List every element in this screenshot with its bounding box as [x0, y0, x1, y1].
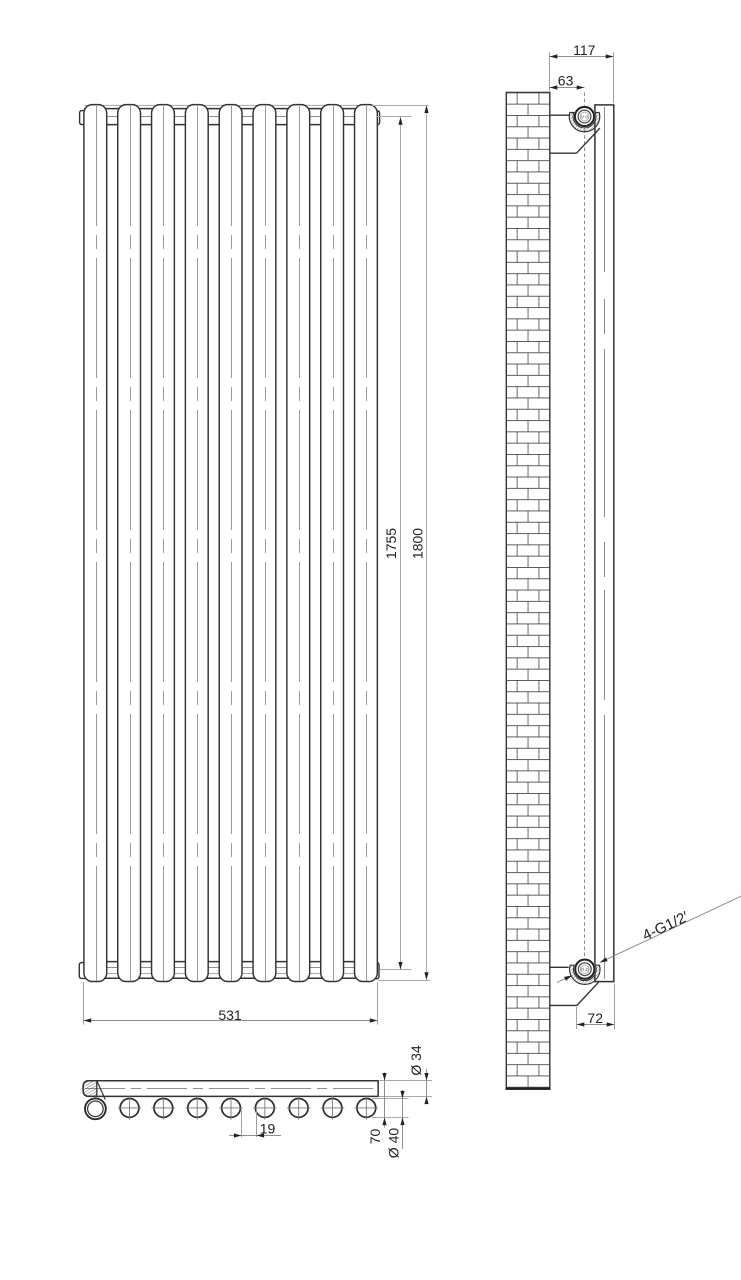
svg-text:Ø 40: Ø 40: [386, 1128, 402, 1159]
svg-text:70: 70: [367, 1129, 383, 1145]
svg-text:531: 531: [218, 1007, 242, 1023]
svg-text:1800: 1800: [410, 528, 426, 559]
svg-text:63: 63: [558, 72, 574, 88]
svg-text:Ø 34: Ø 34: [408, 1045, 424, 1076]
svg-text:1755: 1755: [383, 528, 399, 559]
svg-text:117: 117: [573, 42, 596, 58]
svg-text:72: 72: [587, 1010, 603, 1026]
svg-text:19: 19: [260, 1121, 276, 1137]
